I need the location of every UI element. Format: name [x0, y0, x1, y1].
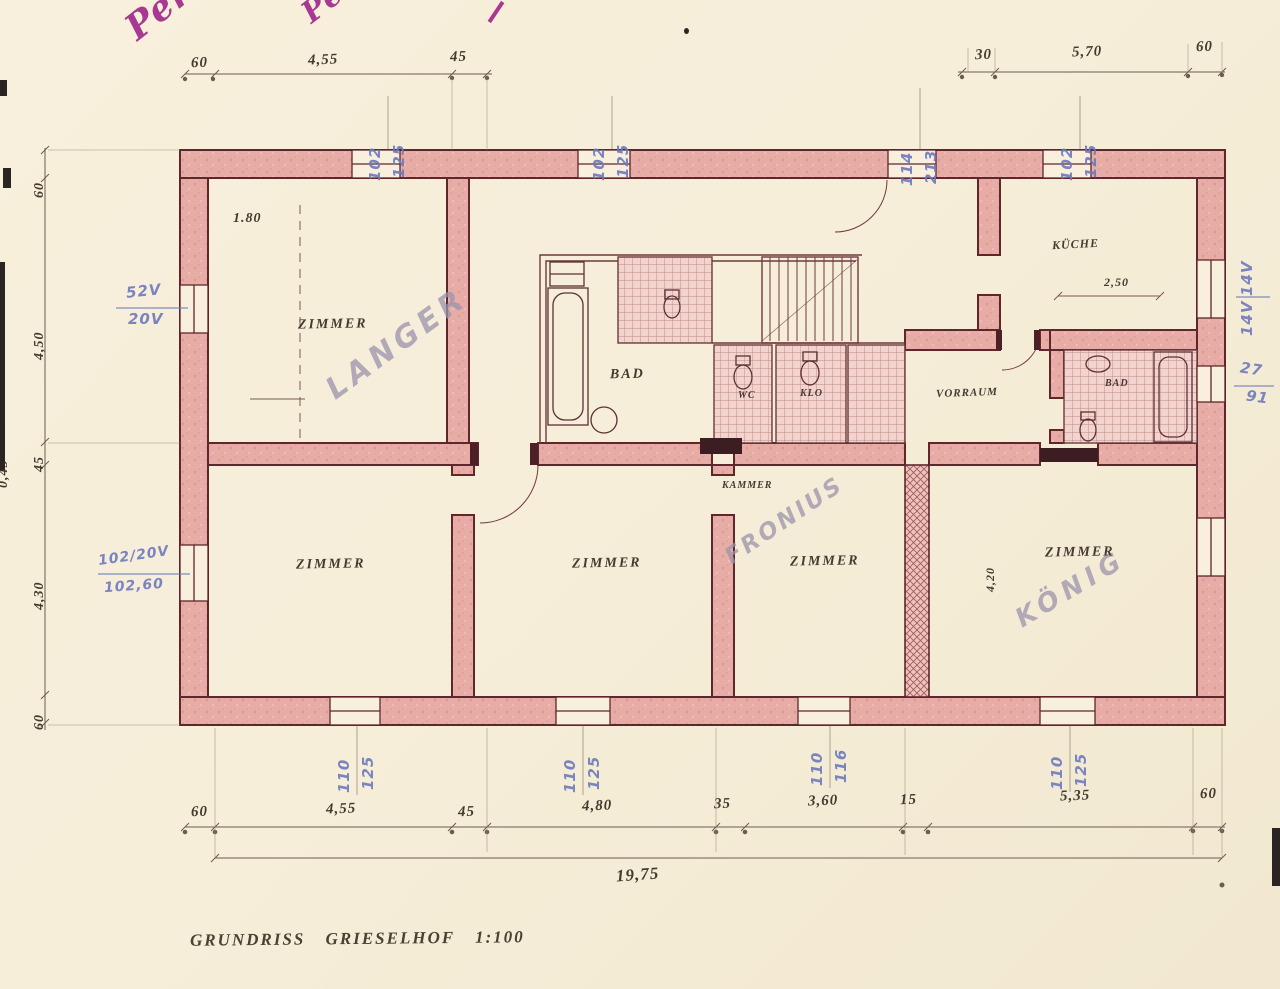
blue-dim-top-1a: 102 [368, 147, 383, 181]
drawing-caption: GRUNDRISS GRIESELHOF 1:100 [190, 928, 525, 949]
room-label-bad: BAD [610, 368, 645, 383]
room-label-kammer: KAMMER [722, 481, 772, 491]
blue-dim-bottom-1b: 125 [361, 756, 376, 790]
dim-bottom-5: 3,60 [808, 793, 839, 809]
scanned-floorplan-page: Perneg Pe LANGER FRONIUS KÖNIG ZIMMER BA… [0, 0, 1280, 989]
blue-dim-top-4a: 102 [1060, 147, 1075, 181]
blue-dim-top-3b: 213 [924, 150, 939, 184]
blue-dim-bottom-2a: 110 [563, 759, 578, 793]
room-label-zimmer-top: ZIMMER [298, 317, 368, 332]
dim-top-0: 60 [191, 56, 209, 72]
blue-dim-top-1b: 125 [392, 144, 407, 178]
annotation-zimmer4-depth: 4,20 [984, 567, 996, 592]
annotation-kueche-width: 2,50 [1104, 276, 1129, 288]
blue-dim-top-4b: 125 [1084, 144, 1099, 178]
blue-dim-top-2a: 102 [592, 147, 607, 181]
dim-left-4: 60 [33, 714, 47, 730]
room-label-klo: KLO [800, 389, 823, 399]
blue-dim-left-a: 52V [125, 282, 162, 301]
room-label-wc: WC [738, 391, 756, 401]
blue-dim-top-3a: 114 [900, 152, 915, 186]
dim-top-2: 45 [450, 50, 468, 66]
room-label-zimmer-b4: ZIMMER [1045, 545, 1115, 560]
dim-bottom-6: 15 [900, 793, 918, 809]
blue-dim-right-mid-a: 27 [1239, 360, 1264, 378]
dim-bottom-3: 4,80 [582, 798, 613, 814]
scan-artifact [0, 80, 7, 96]
blue-dim-leftmid-b: 102,60 [104, 577, 165, 595]
blue-dim-top-2b: 125 [616, 144, 631, 178]
scan-artifact [684, 28, 689, 34]
blue-dim-bottom-3b: 116 [834, 749, 849, 783]
dim-bottom-2: 45 [458, 805, 476, 821]
blue-dim-bottom-4a: 110 [1050, 756, 1065, 790]
blue-dim-bottom-3a: 110 [810, 752, 825, 786]
room-label-vorraum: VORRAUM [936, 387, 998, 400]
dim-top-5: 60 [1196, 40, 1214, 56]
dim-left-2: 45 [33, 456, 47, 472]
dim-bottom-7: 5,35 [1060, 788, 1091, 804]
scan-artifact [0, 262, 5, 470]
room-label-bad-right: BAD [1105, 379, 1129, 389]
room-label-zimmer-b2: ZIMMER [572, 556, 642, 571]
dim-top-1: 4,55 [308, 52, 339, 68]
blue-dim-left-b: 20V [128, 312, 163, 327]
dim-left-0: 60 [33, 182, 47, 198]
dim-left-1: 4,50 [33, 332, 47, 361]
dim-bottom-0: 60 [191, 805, 209, 821]
blue-dim-right-top-a: 14V [1240, 261, 1255, 296]
blue-dim-bottom-1a: 110 [337, 759, 352, 793]
room-label-zimmer-b1: ZIMMER [296, 557, 366, 572]
dim-bottom-8: 60 [1200, 787, 1218, 803]
blue-dim-bottom-4b: 125 [1074, 753, 1089, 787]
blue-dim-right-mid-b: 91 [1245, 388, 1270, 406]
dim-top-3: 30 [975, 48, 993, 64]
blue-dim-bottom-2b: 125 [587, 756, 602, 790]
dim-bottom-4: 35 [714, 797, 732, 813]
scan-artifact [1272, 828, 1280, 886]
dim-top-4: 5,70 [1072, 44, 1103, 60]
annotation-door-height: 1.80 [233, 212, 262, 226]
room-label-zimmer-b3: ZIMMER [790, 554, 860, 569]
dim-total-width: 19,75 [615, 865, 659, 885]
dim-bottom-1: 4,55 [326, 801, 357, 817]
dim-left-3: 4,30 [33, 582, 47, 611]
blue-dim-right-top-b: 14V [1240, 301, 1255, 336]
scan-artifact [3, 168, 11, 188]
chimney-wall-hatched [905, 465, 929, 697]
room-label-kueche: KÜCHE [1052, 237, 1100, 251]
